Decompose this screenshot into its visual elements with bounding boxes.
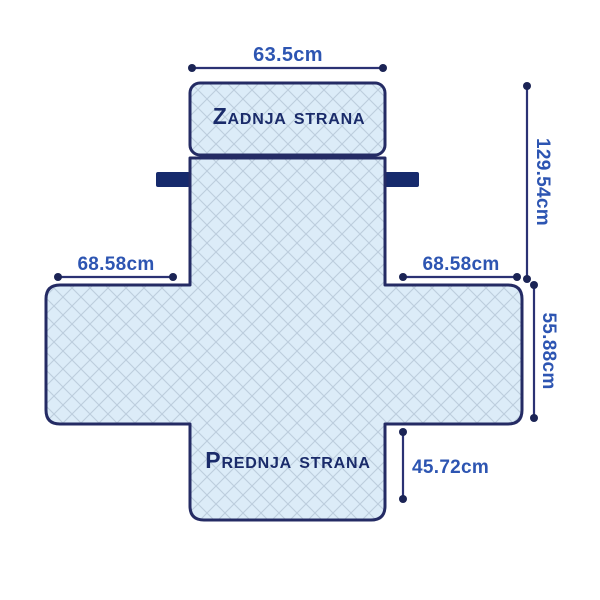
diagram-canvas: Zadnja strana Prednja strana 63.5cm 129.…	[0, 0, 600, 600]
back-panel-label: Zadnja strana	[213, 103, 366, 129]
seat-side-depth-value: 55.88cm	[538, 312, 559, 389]
back-width-value: 63.5cm	[253, 44, 323, 66]
dimension-front-drop: 45.72cm	[399, 428, 489, 503]
right-strap	[385, 172, 419, 187]
dimension-right-arm-width: 68.58cm	[399, 254, 521, 281]
dimension-seat-side-depth: 55.88cm	[530, 281, 559, 422]
front-drop-value: 45.72cm	[412, 457, 489, 478]
sofa-cover-dimension-diagram: Zadnja strana Prednja strana 63.5cm 129.…	[0, 0, 600, 600]
total-length-value: 129.54cm	[532, 138, 553, 226]
left-arm-width-value: 68.58cm	[77, 254, 154, 275]
left-strap	[156, 172, 190, 187]
dimension-back-width: 63.5cm	[188, 44, 387, 72]
dimension-left-arm-width: 68.58cm	[54, 254, 177, 281]
right-arm-width-value: 68.58cm	[422, 254, 499, 275]
dimension-total-length: 129.54cm	[523, 82, 553, 283]
front-panel-label: Prednja strana	[205, 447, 370, 473]
